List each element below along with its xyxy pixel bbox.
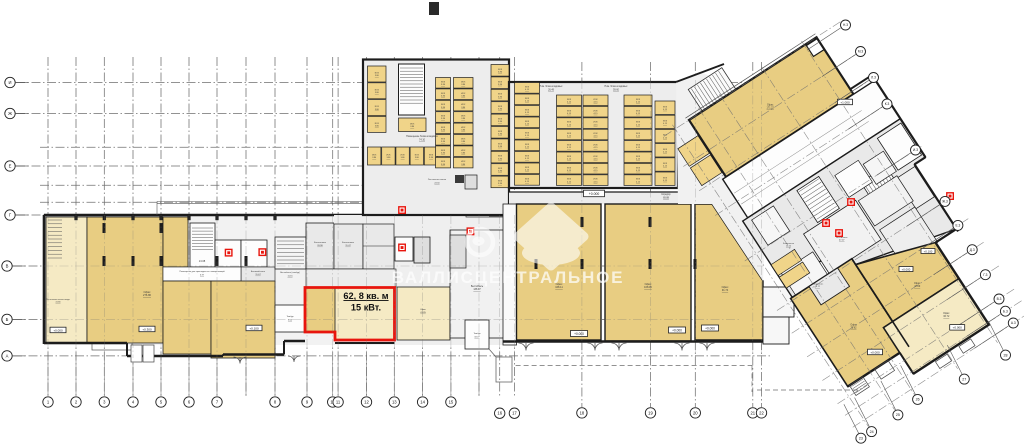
svg-text:26.49: 26.49 xyxy=(548,89,554,91)
svg-text:В: В xyxy=(6,264,9,269)
svg-text:Ж.3: Ж.3 xyxy=(942,200,948,204)
svg-text:28: 28 xyxy=(1004,353,1008,357)
svg-text:В.3: В.3 xyxy=(997,297,1002,301)
svg-text:20: 20 xyxy=(693,410,698,415)
svg-text:Помещение для прокладки тех. к: Помещение для прокладки тех. коммуникаци… xyxy=(179,270,225,273)
svg-text:+0.000: +0.000 xyxy=(589,192,600,196)
svg-text:Вестибюль (тамбур): Вестибюль (тамбур) xyxy=(280,272,300,274)
svg-text:16: 16 xyxy=(497,411,502,416)
svg-text:Л.3: Л.3 xyxy=(871,76,876,80)
svg-text:41.80: 41.80 xyxy=(55,302,61,304)
svg-text:И: И xyxy=(8,80,11,85)
svg-text:24.50: 24.50 xyxy=(434,182,440,184)
svg-text:Бытовой холл: Бытовой холл xyxy=(251,270,266,273)
svg-text:26: 26 xyxy=(916,398,920,402)
svg-text:11.16: 11.16 xyxy=(287,275,293,277)
svg-text:18.72: 18.72 xyxy=(815,286,821,288)
svg-text:15 кВт.: 15 кВт. xyxy=(351,303,381,313)
svg-text:171.22: 171.22 xyxy=(767,106,775,109)
svg-text:25: 25 xyxy=(896,413,900,417)
svg-text:Ж: Ж xyxy=(8,111,12,116)
svg-text:+0.000: +0.000 xyxy=(870,350,880,354)
svg-text:23: 23 xyxy=(859,437,863,441)
svg-text:+0.000: +0.000 xyxy=(672,328,682,332)
svg-text:Колясочная: Колясочная xyxy=(342,242,355,244)
svg-text:11.67: 11.67 xyxy=(255,274,261,276)
svg-text:+0.000: +0.000 xyxy=(902,267,911,271)
svg-text:20.96: 20.96 xyxy=(317,245,323,247)
svg-text:74.10: 74.10 xyxy=(419,139,426,142)
svg-text:А.3: А.3 xyxy=(1011,321,1016,325)
svg-text:+1.000: +1.000 xyxy=(840,100,850,104)
svg-text:138.97: 138.97 xyxy=(473,288,481,291)
svg-text:И.3: И.3 xyxy=(913,148,918,152)
svg-text:+0.000: +0.000 xyxy=(705,326,715,330)
svg-text:+0.000: +0.000 xyxy=(574,332,584,336)
svg-text:47.09: 47.09 xyxy=(914,285,921,288)
svg-text:Н.3: Н.3 xyxy=(843,23,848,27)
svg-text:11.47: 11.47 xyxy=(345,245,351,247)
svg-text:Е: Е xyxy=(9,164,12,169)
svg-text:21: 21 xyxy=(750,410,755,415)
svg-text:17: 17 xyxy=(512,411,517,416)
svg-text:А: А xyxy=(6,353,9,358)
svg-text:168.05: 168.05 xyxy=(644,286,652,289)
svg-text:73.62: 73.62 xyxy=(851,327,858,330)
svg-text:Лестничная клетка: Лестничная клетка xyxy=(428,179,447,181)
svg-text:18: 18 xyxy=(580,410,585,415)
svg-text:Коридор: Коридор xyxy=(661,194,671,196)
svg-text:15: 15 xyxy=(449,400,454,405)
svg-text:91.74: 91.74 xyxy=(722,289,729,292)
svg-text:М.3: М.3 xyxy=(858,50,864,54)
svg-text:Б.3: Б.3 xyxy=(1003,309,1008,313)
svg-text:+0.100: +0.100 xyxy=(924,249,933,253)
svg-text:19: 19 xyxy=(648,410,653,415)
svg-text:ВАЛЛИСЦЕНТРАЛЬНОЕ: ВАЛЛИСЦЕНТРАЛЬНОЕ xyxy=(392,268,625,287)
svg-text:Е.3: Е.3 xyxy=(956,224,961,228)
svg-text:24: 24 xyxy=(870,430,874,434)
svg-text:11: 11 xyxy=(336,400,341,405)
svg-text:Д.3: Д.3 xyxy=(970,248,975,252)
svg-text:+0.300: +0.300 xyxy=(142,327,152,331)
svg-text:41.85: 41.85 xyxy=(420,312,426,314)
svg-text:Б: Б xyxy=(6,317,9,322)
svg-text:27: 27 xyxy=(962,377,966,381)
svg-text:Офис: Офис xyxy=(420,308,427,311)
svg-text:+0.100: +0.100 xyxy=(249,326,259,330)
svg-text:Пом. блока кладовых: Пом. блока кладовых xyxy=(605,86,629,88)
svg-text:Г.3: Г.3 xyxy=(983,273,987,277)
svg-text:14: 14 xyxy=(420,400,425,405)
svg-text:Вестибюль: Вестибюль xyxy=(836,237,848,239)
svg-text:Тамбур: Тамбур xyxy=(286,316,294,318)
svg-text:13: 13 xyxy=(392,400,397,405)
svg-text:12.22: 12.22 xyxy=(786,245,792,247)
svg-text:22: 22 xyxy=(759,410,764,415)
svg-text:+0.000: +0.000 xyxy=(953,326,963,330)
svg-text:62, 8 кв. м: 62, 8 кв. м xyxy=(343,291,388,301)
svg-text:+0.000: +0.000 xyxy=(53,328,63,332)
svg-text:12: 12 xyxy=(364,400,369,405)
svg-text:Тамбур: Тамбур xyxy=(473,333,481,335)
svg-text:59.60: 59.60 xyxy=(613,89,619,91)
svg-text:Пом. блока кладовых: Пом. блока кладовых xyxy=(540,86,564,88)
svg-text:Помещение блока кладовых: Помещение блока кладовых xyxy=(406,135,439,138)
svg-text:К.3: К.3 xyxy=(885,102,890,106)
svg-text:18.77: 18.77 xyxy=(474,336,480,338)
svg-text:47.47: 47.47 xyxy=(839,240,845,242)
svg-text:69.88: 69.88 xyxy=(663,197,669,199)
svg-text:Колясочная: Колясочная xyxy=(314,242,327,244)
svg-text:13.08: 13.08 xyxy=(199,259,206,263)
svg-text:276.80: 276.80 xyxy=(143,293,151,297)
svg-text:36.72: 36.72 xyxy=(943,315,950,318)
